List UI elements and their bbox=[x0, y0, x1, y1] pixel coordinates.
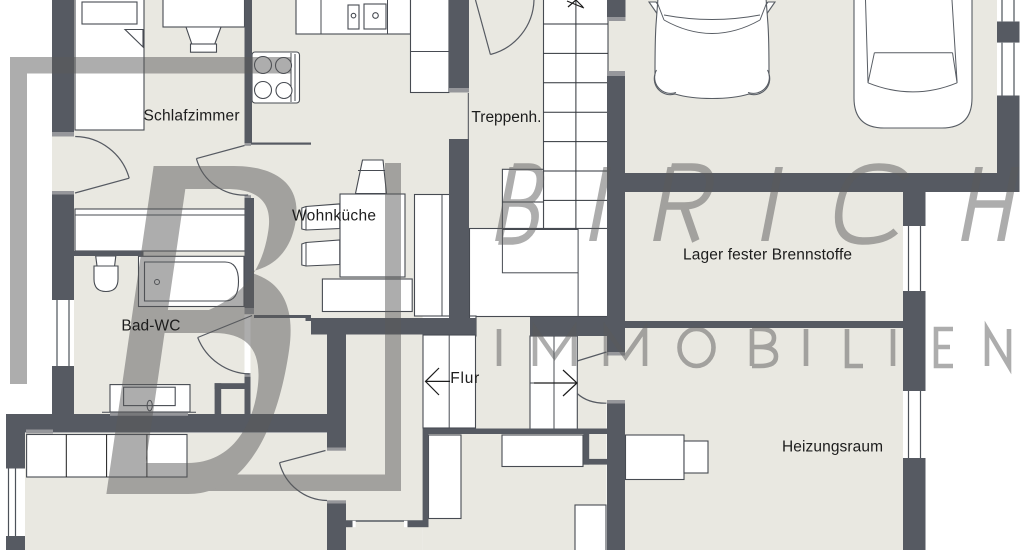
svg-text:Treppenh.: Treppenh. bbox=[471, 109, 541, 126]
svg-text:Heizungsraum: Heizungsraum bbox=[782, 439, 883, 456]
svg-text:Bad-WC: Bad-WC bbox=[121, 318, 180, 335]
svg-text:Schlafzimmer: Schlafzimmer bbox=[144, 108, 240, 125]
svg-text:Lager fester Brennstoffe: Lager fester Brennstoffe bbox=[683, 247, 852, 264]
svg-text:Wohnküche: Wohnküche bbox=[292, 208, 376, 225]
svg-text:Flur: Flur bbox=[450, 370, 479, 387]
